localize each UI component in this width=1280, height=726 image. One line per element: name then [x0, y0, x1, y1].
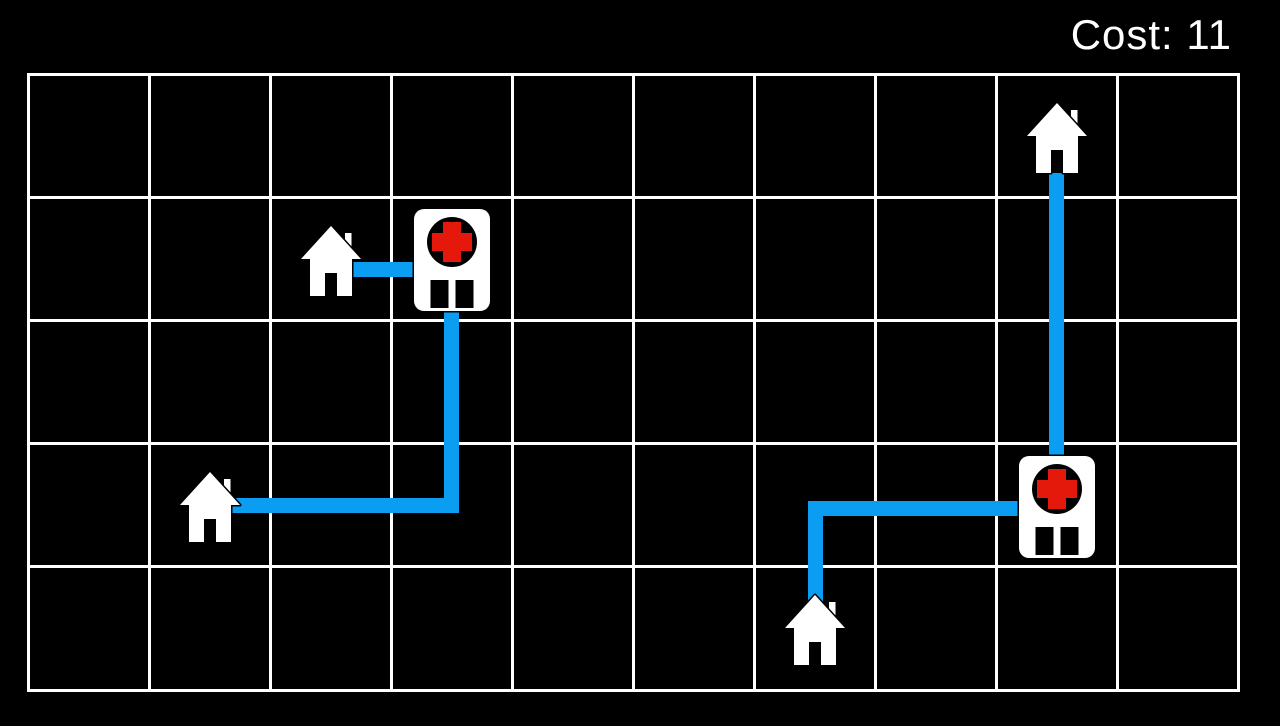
hospital-r3-c8[interactable]	[1019, 456, 1095, 558]
house-icon	[785, 595, 845, 665]
grid-line-vertical	[269, 73, 272, 692]
house-icon	[301, 226, 361, 296]
grid-line-vertical	[148, 73, 151, 692]
grid-line-vertical	[390, 73, 393, 692]
hospital-door-right	[455, 280, 473, 308]
grid-line-vertical	[874, 73, 877, 692]
route-segment-house31-vertical-to-hospital[interactable]	[444, 310, 459, 513]
hospital-icon	[414, 209, 490, 311]
house-r0-c8[interactable]	[1027, 103, 1087, 173]
hospital-r1-c3[interactable]	[414, 209, 490, 311]
hospital-door-left	[430, 280, 448, 308]
grid-line-horizontal	[27, 73, 1240, 76]
grid-line-vertical	[27, 73, 30, 692]
cost-label: Cost: 11	[1071, 11, 1232, 58]
grid-line-vertical	[995, 73, 998, 692]
house-r4-c6[interactable]	[785, 595, 845, 665]
house-icon	[1027, 103, 1087, 173]
hospital-icon	[1019, 456, 1095, 558]
grid-line-vertical	[1116, 73, 1119, 692]
route-segment-house46-horizontal-to-hospital[interactable]	[808, 501, 1021, 516]
hospital-door-left	[1035, 527, 1053, 555]
hospital-door-right	[1060, 527, 1078, 555]
game-screen: Cost: 11	[0, 0, 1280, 726]
grid-line-vertical	[753, 73, 756, 692]
grid-line-horizontal	[27, 689, 1240, 692]
grid-line-vertical	[632, 73, 635, 692]
grid-line-horizontal	[27, 565, 1240, 568]
route-segment-house08-vertical-to-hospital[interactable]	[1049, 173, 1064, 460]
house-r1-c2[interactable]	[301, 226, 361, 296]
house-icon	[180, 472, 240, 542]
grid-line-vertical	[511, 73, 514, 692]
house-r3-c1[interactable]	[180, 472, 240, 542]
route-segment-house31-horizontal[interactable]	[218, 498, 459, 513]
grid-line-vertical	[1237, 73, 1240, 692]
hud: Cost: 11	[1071, 12, 1232, 58]
